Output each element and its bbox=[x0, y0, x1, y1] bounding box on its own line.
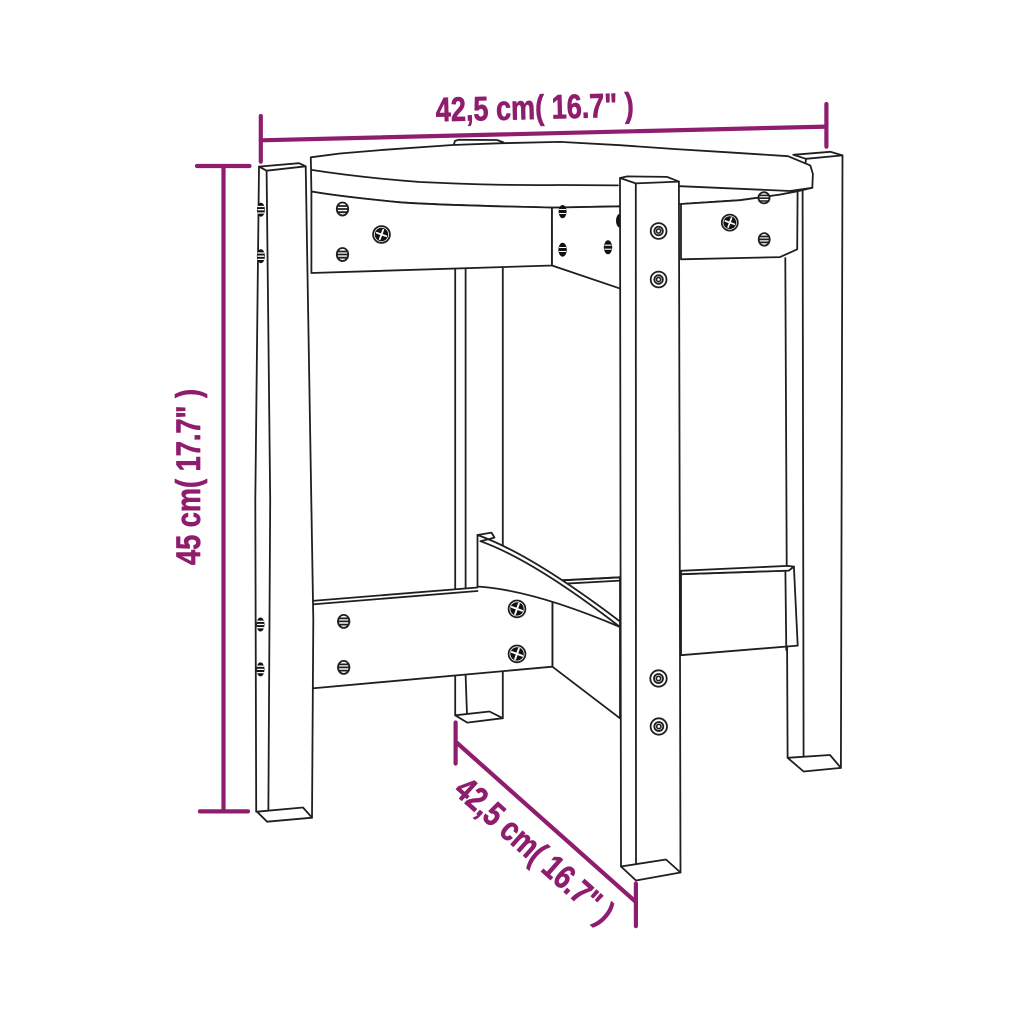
svg-text:42,5 cm( 16.7" ): 42,5 cm( 16.7" ) bbox=[447, 770, 621, 932]
svg-text:45 cm( 17.7" ): 45 cm( 17.7" ) bbox=[170, 389, 208, 565]
svg-text:42,5 cm( 16.7" ): 42,5 cm( 16.7" ) bbox=[435, 87, 634, 130]
